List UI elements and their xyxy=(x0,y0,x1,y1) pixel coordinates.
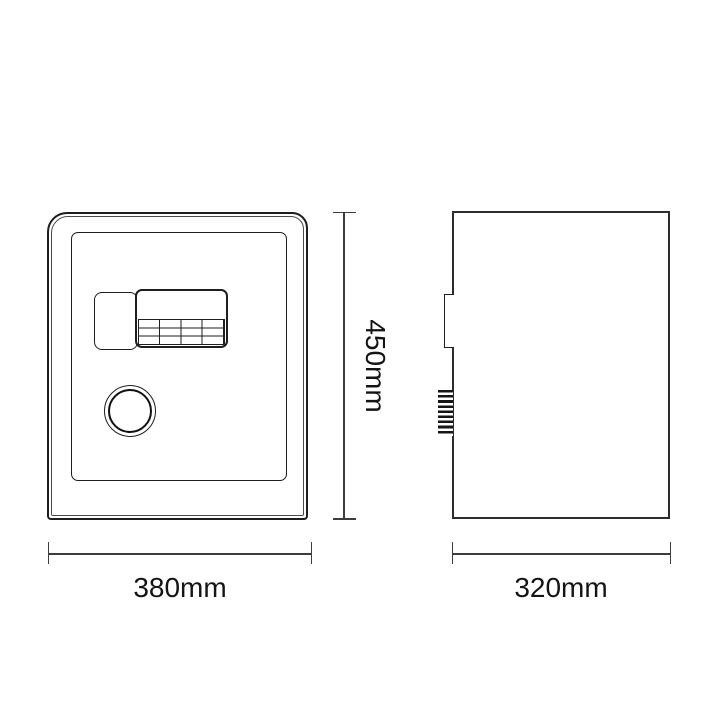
depth-dimension-tick-right xyxy=(670,542,672,564)
keypad-display-window xyxy=(94,292,138,350)
keypad-panel xyxy=(135,289,228,348)
width-dimension-line xyxy=(48,553,312,555)
safe-dimension-diagram: 450mm 380mm 320mm xyxy=(0,0,720,720)
width-dimension-tick-left xyxy=(48,542,50,564)
height-dimension-tick-bottom xyxy=(333,518,356,520)
keypad-side-profile xyxy=(444,294,454,348)
depth-dimension-label: 320mm xyxy=(514,574,607,602)
knurled-knob-icon xyxy=(438,390,453,436)
height-dimension-line xyxy=(343,212,345,519)
side-view-body-outline xyxy=(452,211,670,519)
height-dimension-tick-top xyxy=(333,212,356,214)
height-dimension-label: 450mm xyxy=(361,319,389,412)
depth-dimension-tick-left xyxy=(452,542,454,564)
door-knob-inner-ring xyxy=(108,389,152,433)
depth-dimension-line xyxy=(452,553,671,555)
keypad-button-grid-icon xyxy=(138,319,225,345)
front-door-outline xyxy=(71,232,287,481)
door-knob-dial-icon xyxy=(104,385,156,437)
width-dimension-tick-right xyxy=(311,542,313,564)
width-dimension-label: 380mm xyxy=(133,574,226,602)
